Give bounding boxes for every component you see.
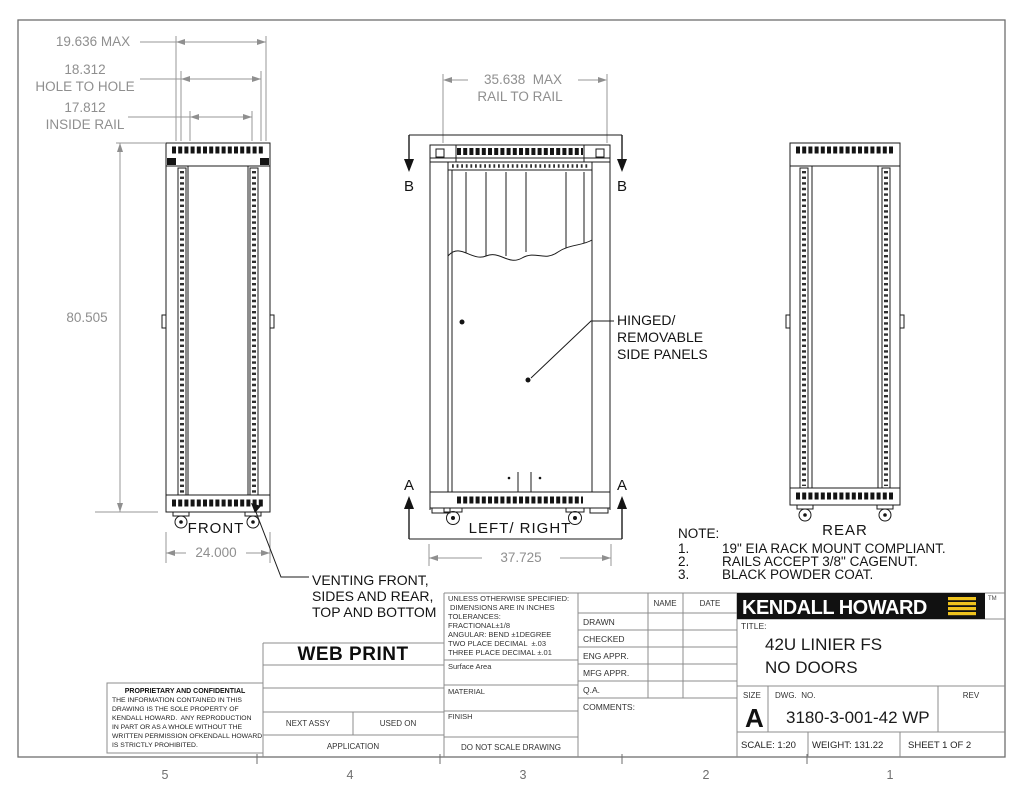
zone-label: 2 — [703, 768, 710, 782]
side-view-label: LEFT/ RIGHT — [469, 520, 572, 537]
spec-line: TWO PLACE DECIMAL ±.03 — [448, 639, 546, 648]
approval-row-label: CHECKED — [583, 634, 625, 644]
comments-label: COMMENTS: — [583, 702, 635, 712]
front-view: FRONT — [162, 143, 274, 537]
dim-height: 80.505 — [66, 310, 107, 325]
finish-label: FINISH — [448, 712, 473, 721]
zone-label: 3 — [520, 768, 527, 782]
dim-hole-to-hole-value: 18.312 — [64, 62, 105, 77]
section-a-label: A — [404, 477, 414, 494]
note-3-text: BLACK POWDER COAT. — [722, 567, 873, 582]
height-dimension: 80.505 — [66, 143, 165, 512]
notes: NOTE: 1. 19" EIA RACK MOUNT COMPLIANT. 2… — [678, 526, 946, 582]
surface-area-label: Surface Area — [448, 662, 492, 671]
date-header: DATE — [700, 599, 721, 608]
application-label: APPLICATION — [327, 742, 380, 751]
front-view-label: FRONT — [188, 520, 245, 537]
drawing-title-line2: NO DOORS — [765, 658, 858, 677]
break-line — [448, 240, 592, 260]
dim-front-width: 24.000 — [195, 545, 236, 560]
brand-logo-text: KENDALL HOWARD — [742, 597, 927, 619]
panel-pin-dot — [460, 320, 465, 325]
dim-rail-to-rail-label: RAIL TO RAIL — [477, 89, 563, 104]
next-assy-label: NEXT ASSY — [286, 719, 331, 728]
note-3-num: 3. — [678, 567, 689, 582]
dim-depth: 37.725 — [500, 550, 541, 565]
dim-inside-rail-value: 17.812 — [64, 100, 105, 115]
zone-labels: 5 4 3 2 1 — [162, 768, 894, 782]
spec-line: ANGULAR: BEND ±1DEGREE — [448, 630, 551, 639]
engineering-drawing-sheet: 5 4 3 2 1 FRONT — [0, 0, 1024, 791]
zone-label: 5 — [162, 768, 169, 782]
proprietary-line: IS STRICTLY PROHIBITED. — [112, 742, 198, 749]
rear-view-label: REAR — [822, 522, 868, 539]
venting-line2: SIDES AND REAR, — [312, 588, 433, 604]
rear-view: REAR — [786, 143, 904, 539]
do-not-scale-label: DO NOT SCALE DRAWING — [461, 743, 561, 752]
material-label: MATERIAL — [448, 687, 485, 696]
proprietary-line: KENDALL HOWARD. ANY REPRODUCTION — [112, 715, 252, 722]
spec-line: TOLERANCES: — [448, 612, 501, 621]
zone-label: 1 — [887, 768, 894, 782]
spec-block: UNLESS OTHERWISE SPECIFIED: DIMENSIONS A… — [448, 594, 569, 752]
proprietary-line: IN PART OR AS A WHOLE WITHOUT THE — [112, 724, 243, 731]
side-view: LEFT/ RIGHT — [430, 145, 610, 537]
venting-line3: TOP AND BOTTOM — [312, 604, 436, 620]
proprietary-line: DRAWING IS THE SOLE PROPERTY OF — [112, 706, 239, 713]
dwg-no-label: DWG. NO. — [775, 691, 815, 700]
title-label: TITLE: — [741, 621, 767, 631]
section-b: B B — [404, 135, 627, 195]
approval-row-label: MFG APPR. — [583, 668, 629, 678]
hinged-callout: HINGED/ REMOVABLE SIDE PANELS — [531, 312, 708, 378]
dwg-no-value: 3180-3-001-42 WP — [786, 708, 930, 727]
depth-dimension: 37.725 — [429, 544, 611, 566]
scale-value: SCALE: 1:20 — [741, 740, 796, 751]
used-on-label: USED ON — [380, 719, 417, 728]
rear-casters — [797, 505, 893, 521]
section-a-label: A — [617, 477, 627, 494]
web-print-stamp: WEB PRINT — [297, 644, 408, 665]
approval-row-label: Q.A. — [583, 685, 600, 695]
note-title: NOTE: — [678, 526, 719, 541]
hinged-line2: REMOVABLE — [617, 329, 703, 345]
proprietary-line: THE INFORMATION CONTAINED IN THIS — [112, 697, 242, 704]
brand-title-block: KENDALL HOWARD TM TITLE: 42U LINIER FS N… — [737, 593, 997, 751]
size-value: A — [745, 703, 764, 733]
section-b-label: B — [617, 178, 627, 195]
approval-block: NAME DATE DRAWN CHECKED ENG APPR. MFG AP… — [583, 599, 720, 712]
spec-line: THREE PLACE DECIMAL ±.01 — [448, 648, 552, 657]
spec-line: FRACTIONAL±1/8 — [448, 621, 510, 630]
approval-row-label: DRAWN — [583, 617, 615, 627]
proprietary-line: WRITTEN PERMISSION OFKENDALL HOWARD — [112, 733, 262, 740]
sheet-number: SHEET 1 OF 2 — [908, 740, 971, 751]
zone-label: 4 — [347, 768, 354, 782]
drawing-title-line1: 42U LINIER FS — [765, 635, 882, 654]
trademark-symbol: TM — [988, 596, 997, 602]
zone-ticks — [257, 754, 807, 764]
name-header: NAME — [653, 599, 676, 608]
spec-line: DIMENSIONS ARE IN INCHES — [450, 603, 555, 612]
size-label: SIZE — [743, 691, 761, 700]
dim-inside-rail-label: INSIDE RAIL — [46, 117, 125, 132]
dim-hole-to-hole-label: HOLE TO HOLE — [35, 79, 134, 94]
rail-to-rail-dimension: 35.638 MAX RAIL TO RAIL — [443, 72, 607, 143]
proprietary-title: PROPRIETARY AND CONFIDENTIAL — [125, 688, 246, 695]
proprietary-note: PROPRIETARY AND CONFIDENTIAL THE INFORMA… — [112, 688, 262, 749]
spec-line: UNLESS OTHERWISE SPECIFIED: — [448, 594, 569, 603]
section-b-label: B — [404, 178, 414, 195]
approval-row-label: ENG APPR. — [583, 651, 629, 661]
panel-leader-dot — [526, 378, 531, 383]
dim-width-max: 19.636 MAX — [56, 34, 130, 49]
dim-rail-to-rail-value: 35.638 MAX — [484, 72, 562, 87]
hinged-line1: HINGED/ — [617, 312, 675, 328]
hinged-line3: SIDE PANELS — [617, 346, 708, 362]
rev-label: REV — [963, 691, 980, 700]
venting-line1: VENTING FRONT, — [312, 572, 429, 588]
weight-value: WEIGHT: 131.22 — [812, 740, 883, 751]
front-top-dimensions: 19.636 MAX 18.312 HOLE TO HOLE 17.812 IN… — [35, 34, 266, 141]
